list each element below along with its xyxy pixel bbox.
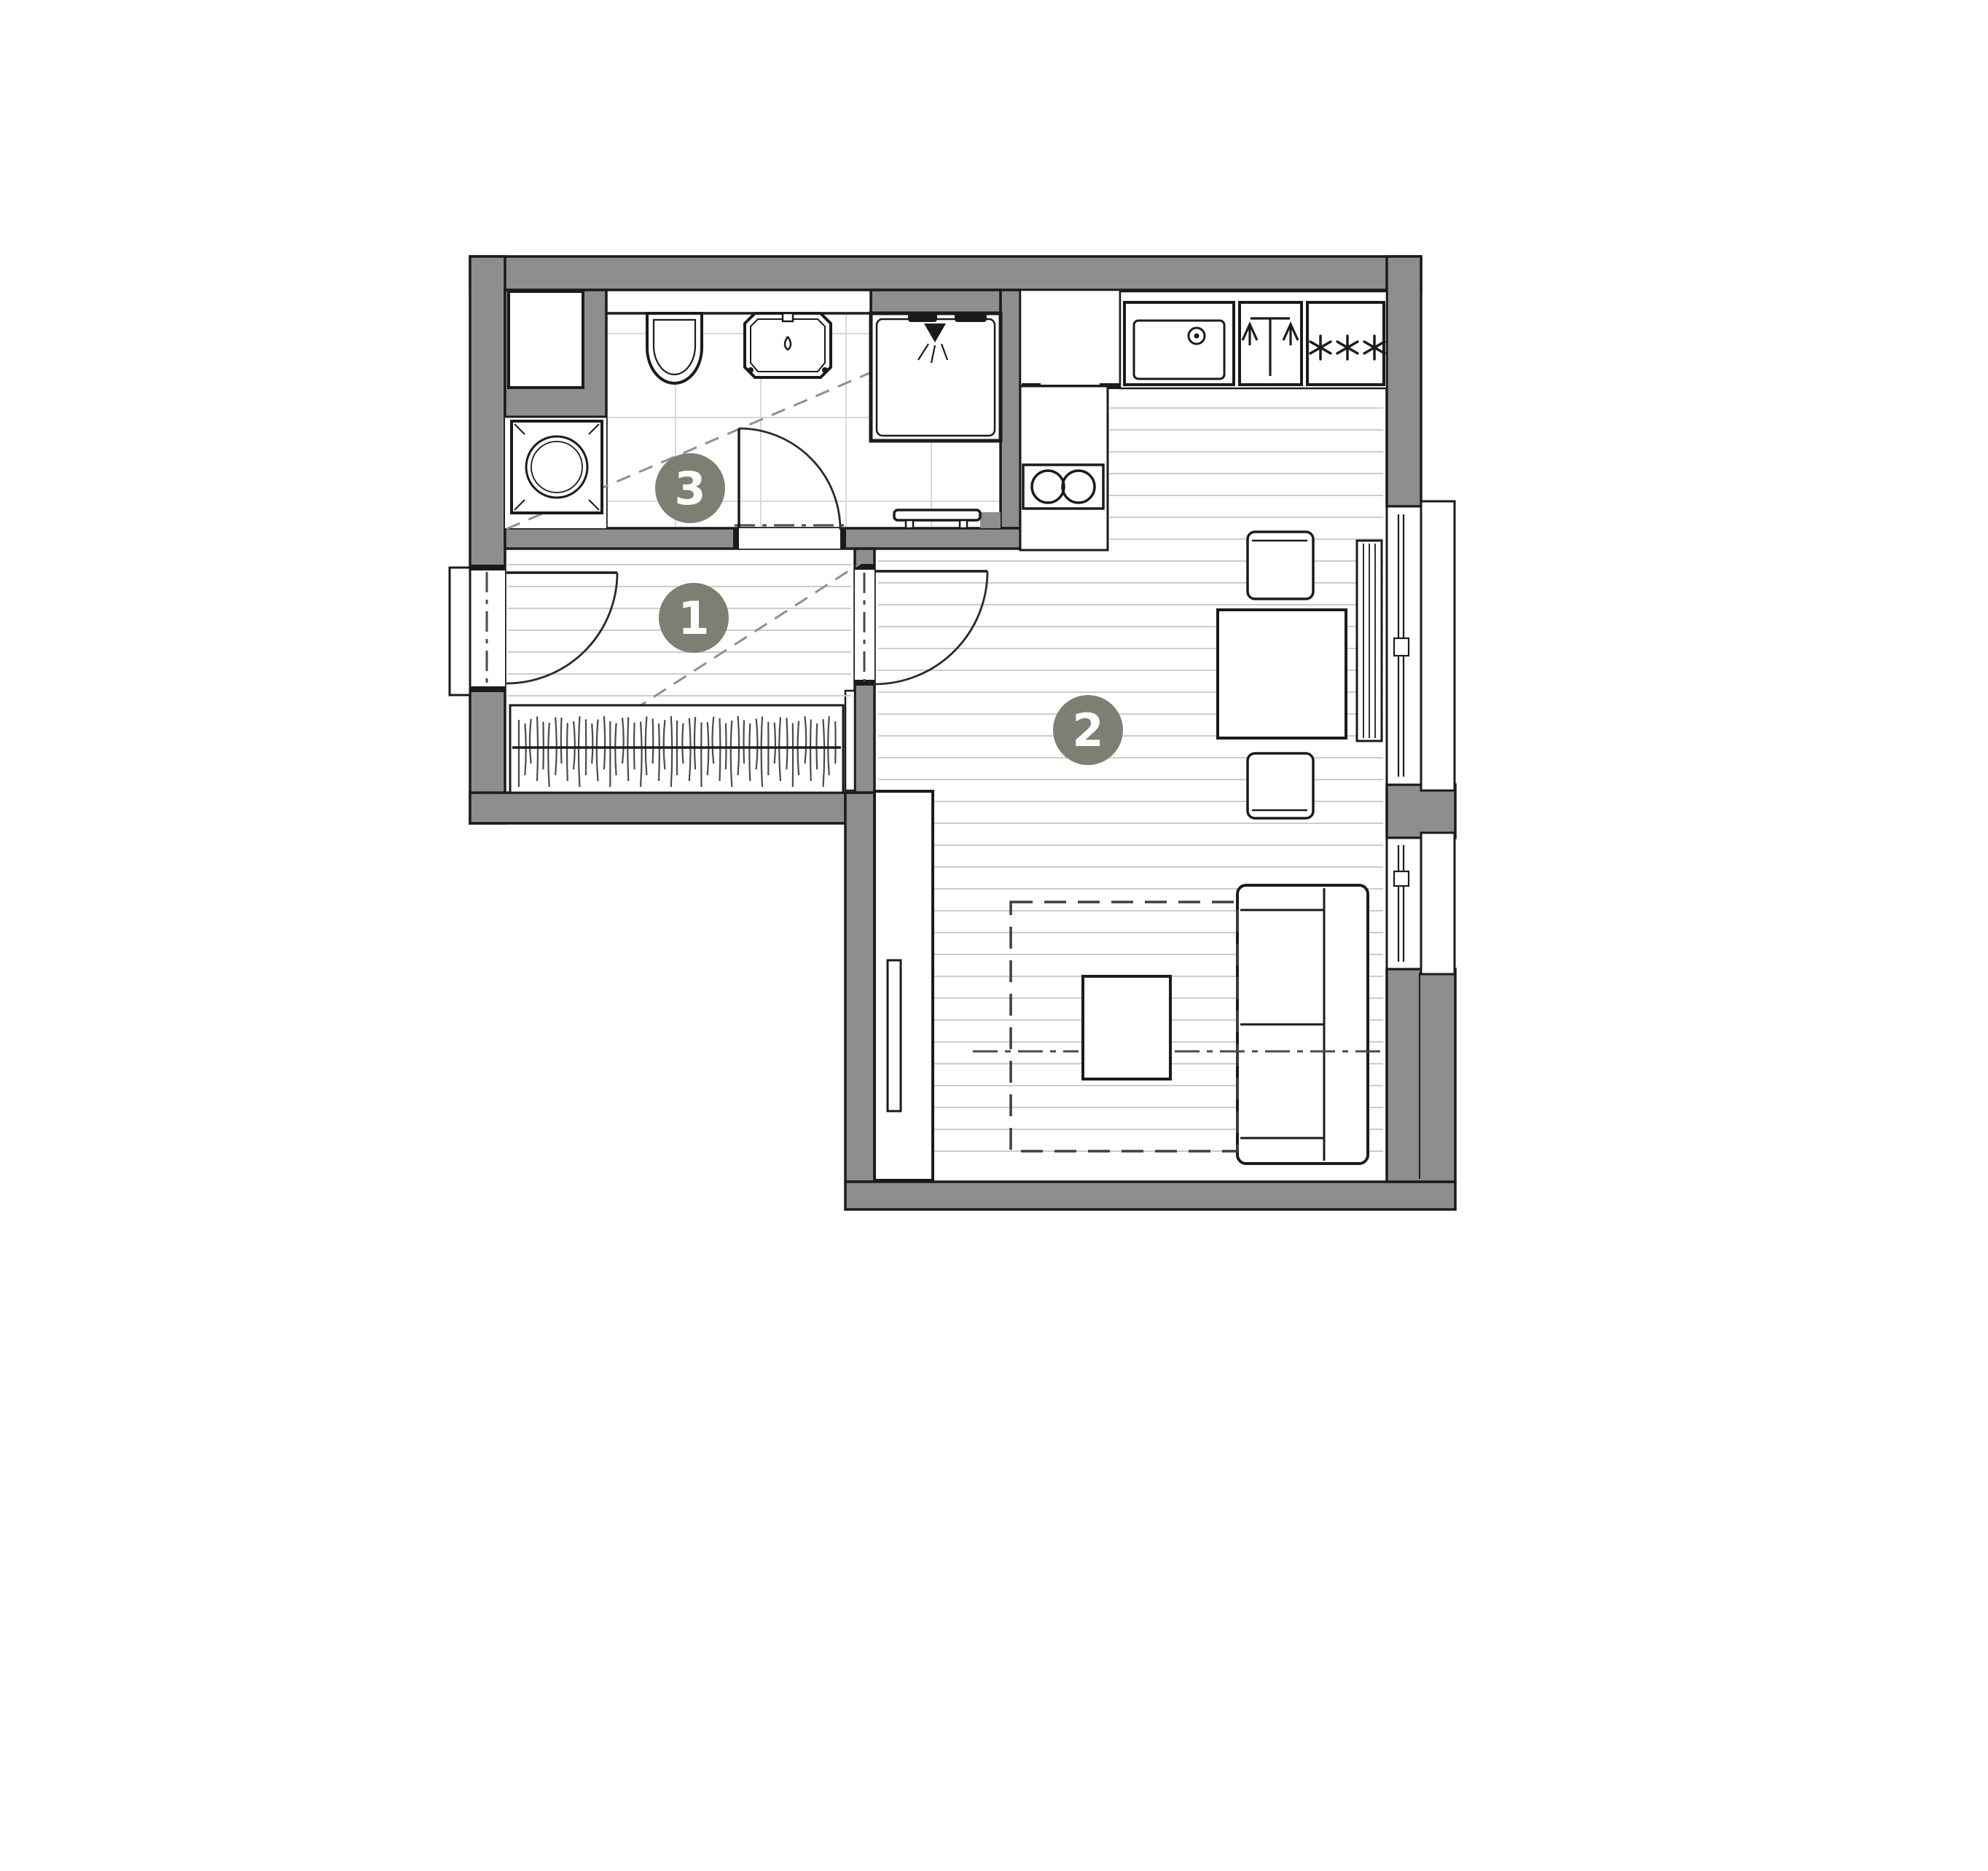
wall-hall-module-bottom xyxy=(470,793,845,823)
door-swing-arc xyxy=(506,573,617,683)
entry-door xyxy=(506,573,617,683)
faucet-icon xyxy=(783,313,793,321)
wall-slot xyxy=(845,691,855,791)
wall-stub xyxy=(980,512,1001,528)
entry-jamb-top xyxy=(470,565,505,570)
bathroom-door-opening xyxy=(739,528,840,549)
clothes-stroke xyxy=(561,718,562,764)
clothes-stroke xyxy=(659,723,660,781)
living-room-door xyxy=(874,571,987,684)
tv-panel xyxy=(888,960,901,1111)
floor-plan-page: 1 2 3 xyxy=(0,0,1988,1871)
chair xyxy=(1248,532,1313,599)
door-swing-arc xyxy=(739,428,840,530)
toilet xyxy=(647,313,702,383)
wall-left xyxy=(470,256,505,823)
hob xyxy=(1023,465,1103,509)
bench xyxy=(894,510,980,528)
dining-set xyxy=(1218,532,1346,818)
wardrobe xyxy=(510,705,843,793)
wall-over-shower xyxy=(871,290,1001,313)
fridge-freezer-unit xyxy=(1307,302,1385,385)
room-badge-3: 3 xyxy=(655,453,725,523)
duct-shaft xyxy=(509,291,583,388)
wall-right-bottom xyxy=(1387,969,1455,1182)
radiator xyxy=(1357,541,1382,741)
cistern-ledge xyxy=(606,290,871,313)
clothes-stroke xyxy=(604,716,605,769)
room-number-label: 1 xyxy=(678,592,709,645)
floor-plan-svg: 1 2 3 xyxy=(0,0,1988,1871)
shower xyxy=(871,313,1001,441)
coffee-table xyxy=(1083,976,1170,1079)
room-number-label: 2 xyxy=(1072,704,1103,757)
wall-living-bottom xyxy=(845,1182,1455,1209)
clothes-stroke xyxy=(810,720,811,781)
clothes-stroke xyxy=(592,723,592,764)
kitchen xyxy=(1020,290,1387,550)
clothes-stroke xyxy=(786,718,787,769)
room-number-label: 3 xyxy=(674,462,705,515)
freezer-snowflakes xyxy=(1310,336,1385,359)
clothes-stroke xyxy=(634,723,635,769)
window-mullion xyxy=(1394,871,1409,886)
sink xyxy=(745,313,831,377)
window-sill xyxy=(1421,833,1455,974)
wall-window-pier xyxy=(1387,785,1455,838)
clothes-stroke xyxy=(567,723,568,781)
room-badge-1: 1 xyxy=(659,583,729,653)
entry-threshold xyxy=(450,568,470,695)
clothes-stroke xyxy=(775,723,775,764)
wall-top xyxy=(470,256,1421,290)
room-badge-2: 2 xyxy=(1053,695,1123,765)
bathroom-door-jamb-left xyxy=(733,528,739,549)
window-2 xyxy=(1387,833,1455,974)
clothes-stroke xyxy=(653,719,654,764)
wall-right-top xyxy=(1387,256,1421,506)
window-mullion xyxy=(1394,638,1409,656)
shower-mixer-icon xyxy=(908,313,937,322)
clothes-stroke xyxy=(682,723,683,764)
entry-jamb-bottom xyxy=(470,686,505,692)
clothes-stroke xyxy=(720,718,721,781)
clothes-stroke xyxy=(694,717,695,769)
bathroom-door xyxy=(739,428,840,530)
wall-bathroom-kitchen xyxy=(1001,290,1020,528)
sofa xyxy=(1237,885,1368,1164)
washing-machine xyxy=(512,421,602,513)
tv-cabinet xyxy=(874,791,933,1180)
wall-living-left xyxy=(845,793,874,1182)
chair xyxy=(1248,753,1313,818)
shower-mixer-icon xyxy=(955,313,987,322)
window-1 xyxy=(1387,501,1455,791)
corner-cabinet xyxy=(1020,290,1120,386)
kitchen-sink-unit xyxy=(1124,302,1234,385)
clothes-stroke xyxy=(749,723,750,781)
clothes-stroke xyxy=(627,717,628,781)
bathroom-door-jamb-right xyxy=(840,528,846,549)
dining-table xyxy=(1218,610,1346,738)
window-sill xyxy=(1421,501,1455,791)
windows xyxy=(1387,501,1455,974)
appliance-unit xyxy=(1240,302,1302,385)
door-swing-arc xyxy=(874,571,987,684)
clothes-stroke xyxy=(744,720,745,764)
living-room xyxy=(874,532,1382,1180)
